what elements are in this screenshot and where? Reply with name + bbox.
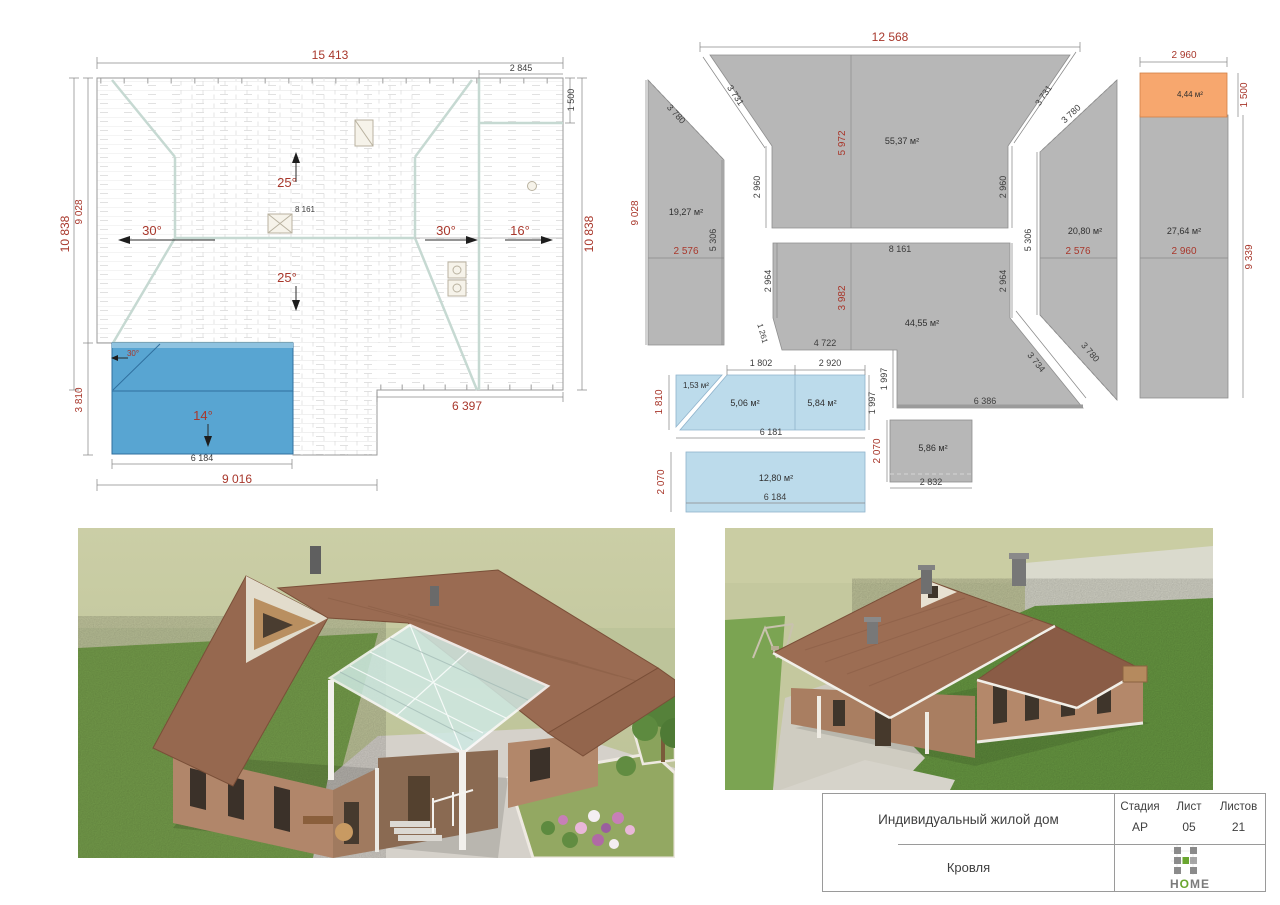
panel-area-label: 1,53 м²	[683, 381, 709, 390]
sheets-column: Листов 21	[1212, 794, 1265, 844]
vent-circle-1	[453, 266, 461, 274]
slope-angle-label: 30°	[127, 349, 139, 358]
table	[335, 823, 353, 841]
panel-area-label: 44,55 м²	[905, 318, 939, 328]
logo-text: O	[1179, 877, 1189, 891]
dim-label: 4 722	[814, 338, 837, 348]
company-logo: HOME	[1114, 845, 1265, 890]
logo-text: ME	[1190, 877, 1210, 891]
sheets-label: Листов	[1212, 801, 1265, 813]
slope-angle-label: 14°	[193, 408, 213, 423]
porch-door	[408, 776, 430, 824]
panel-area-label: 12,80 м²	[759, 473, 793, 483]
dim-label: 2 960	[1171, 246, 1196, 257]
drawing-sheet: 15 413 2 845 1 500 10 838 10 838 9 028 3…	[0, 0, 1280, 905]
dim-label: 1 261	[755, 322, 769, 344]
dim-label: 5 972	[837, 130, 848, 155]
window	[190, 768, 206, 810]
chimney	[310, 546, 321, 574]
stage-value: АР	[1114, 820, 1166, 834]
panel-area-label: 55,37 м²	[885, 136, 919, 146]
window	[274, 786, 290, 832]
panel-area-label: 4,44 м²	[1177, 90, 1203, 99]
dim-label: 6 184	[764, 492, 787, 502]
canopy-upper	[112, 343, 293, 391]
dim-label: 15 413	[312, 48, 349, 62]
panel-area-label: 5,84 м²	[807, 398, 836, 408]
ridge-dim-label: 8 161	[295, 205, 316, 214]
slope-angle-label: 30°	[436, 223, 456, 238]
dim-label: 1 500	[566, 89, 576, 112]
dim-label: 5 306	[1023, 229, 1033, 252]
dim-label: 2 964	[998, 270, 1008, 293]
dim-label: 6 386	[974, 396, 997, 406]
canopy-eave-strip	[112, 343, 293, 348]
diagrams-canvas: 15 413 2 845 1 500 10 838 10 838 9 028 3…	[0, 0, 1280, 522]
dim-label: 1 997	[879, 368, 889, 391]
dim-label: 2 960	[998, 176, 1008, 199]
dim-label: 9 028	[74, 199, 85, 224]
window-small	[833, 700, 845, 726]
sheets-value: 21	[1212, 820, 1265, 834]
dim-label: 2 832	[920, 477, 943, 487]
panel-area-label: 5,06 м²	[730, 398, 759, 408]
sheet-column: Лист 05	[1166, 794, 1212, 844]
dim-label: 6 181	[760, 427, 783, 437]
dim-label: 2 960	[1171, 50, 1196, 61]
svg-text:HOME: HOME	[1169, 877, 1209, 891]
dim-label: 2 070	[656, 469, 667, 494]
panel-area-label: 27,64 м²	[1167, 226, 1201, 236]
render-right-image	[725, 528, 1213, 790]
downpipe	[375, 768, 379, 852]
dim-label: 9 028	[630, 200, 641, 225]
drawing-name: Кровля	[823, 845, 1114, 890]
dim-label: 2 964	[763, 270, 773, 293]
dim-label: 2 070	[872, 438, 883, 463]
planter-box	[1123, 666, 1147, 682]
sheet-value: 05	[1166, 820, 1212, 834]
home-logo-icon: HOME	[1161, 845, 1219, 891]
dim-label: 2 960	[752, 176, 762, 199]
dim-label: 1 802	[750, 358, 773, 368]
chimney	[430, 586, 439, 606]
panel-area-label: 20,80 м²	[1068, 226, 1102, 236]
dim-label: 1 500	[1239, 82, 1250, 107]
render-left-image	[78, 528, 675, 858]
dim-label: 12 568	[872, 30, 909, 44]
project-name: Индивидуальный жилой дом	[823, 794, 1114, 844]
slope-angle-label: 16°	[510, 223, 530, 238]
canopy-plan	[112, 343, 293, 454]
bench	[303, 816, 333, 824]
dim-label: 2 920	[819, 358, 842, 368]
dim-label: 10 838	[58, 215, 72, 252]
dim-label: 2 845	[510, 63, 533, 73]
dim-label: 5 306	[708, 229, 718, 252]
dim-label: 9 339	[1244, 244, 1255, 269]
panel-layout: 12 568 9 028 5 972 2 576 2 576 2 960 1 5…	[630, 30, 1255, 512]
panel-area-label: 5,86 м²	[918, 443, 947, 453]
dim-label: 3 810	[74, 387, 85, 412]
canopy-post	[328, 680, 334, 780]
dim-label: 6 184	[191, 453, 214, 463]
dim-label: 1 997	[867, 392, 877, 415]
dim-label: 1 810	[654, 389, 665, 414]
roof-vent	[528, 182, 537, 191]
slope-angle-label: 25°	[277, 270, 297, 285]
window	[530, 747, 550, 782]
roof-plan: 15 413 2 845 1 500 10 838 10 838 9 028 3…	[58, 48, 596, 491]
panel-20-80	[1040, 80, 1117, 400]
roof-step-hatch	[293, 343, 377, 455]
canopy-post	[459, 750, 466, 850]
logo-text: H	[1169, 877, 1179, 891]
dim-label: 8 161	[889, 244, 912, 254]
slope-angle-label: 30°	[142, 223, 162, 238]
stage-label: Стадия	[1114, 801, 1166, 813]
porch-post	[925, 712, 929, 754]
dim-label: 3 982	[837, 285, 848, 310]
slope-angle-label: 25°	[277, 175, 297, 190]
title-block: Индивидуальный жилой дом Кровля Стадия А…	[822, 793, 1266, 892]
dim-label: 2 576	[1065, 246, 1090, 257]
dim-label: 10 838	[582, 215, 596, 252]
dim-label: 9 016	[222, 472, 252, 486]
panel-area-label: 19,27 м²	[669, 207, 703, 217]
dim-label: 2 576	[673, 246, 698, 257]
dim-label: 6 397	[452, 399, 482, 413]
sheet-label: Лист	[1166, 801, 1212, 813]
vent-circle-2	[453, 284, 461, 292]
stage-column: Стадия АР	[1114, 794, 1166, 844]
porch-post	[817, 696, 821, 738]
